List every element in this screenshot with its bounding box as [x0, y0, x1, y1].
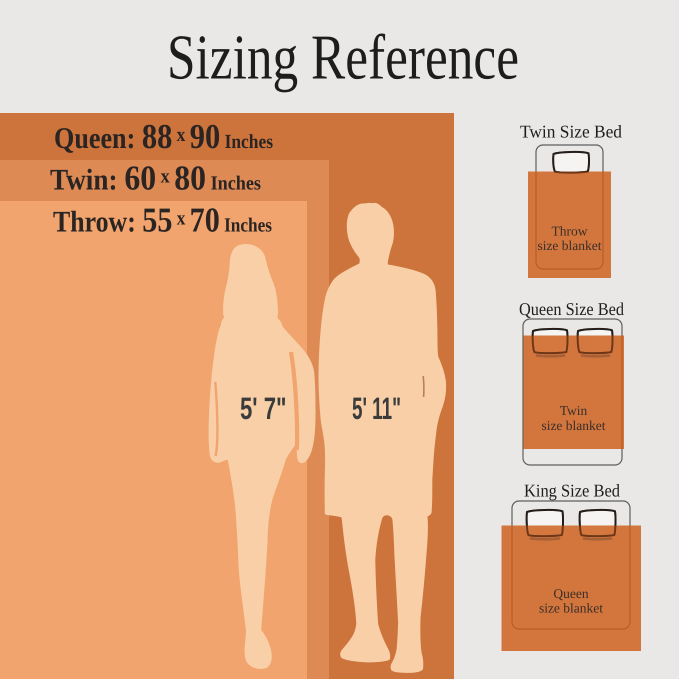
svg-text:size blanket: size blanket [541, 418, 605, 433]
svg-text:Queen Size Bed: Queen Size Bed [519, 299, 624, 319]
svg-text:Sizing Reference: Sizing Reference [167, 22, 519, 93]
svg-text:size blanket: size blanket [539, 601, 603, 616]
svg-text:Queen: Queen [553, 586, 588, 601]
svg-text:size blanket: size blanket [537, 238, 601, 253]
svg-text:Twin: Twin [560, 403, 588, 418]
svg-text:5' 7": 5' 7" [240, 391, 287, 426]
svg-text:Throw: Throw [552, 224, 588, 239]
svg-text:King Size Bed: King Size Bed [524, 481, 620, 501]
svg-text:Twin Size Bed: Twin Size Bed [520, 122, 622, 142]
svg-text:5' 11": 5' 11" [352, 391, 401, 426]
